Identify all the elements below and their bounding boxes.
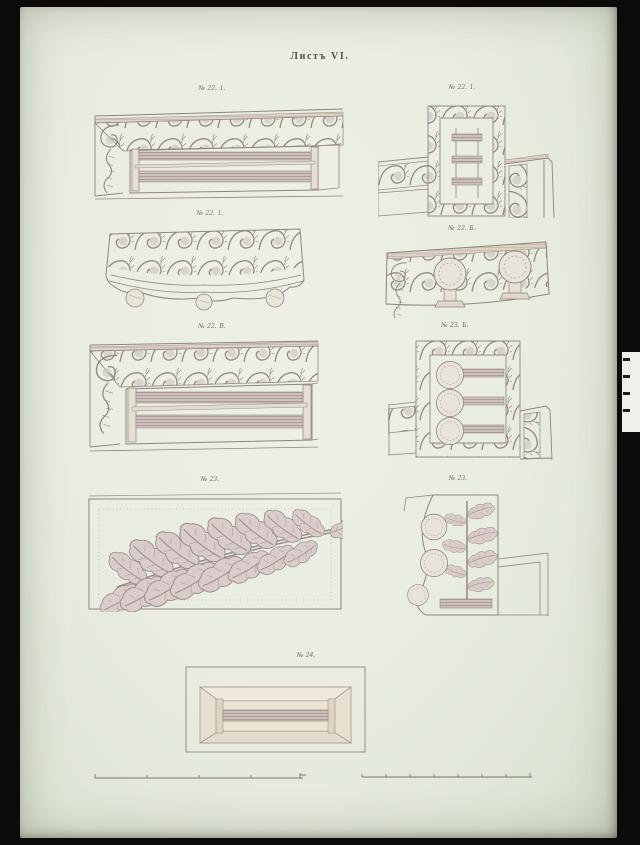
- figure-label: № 22. Б.: [448, 224, 476, 232]
- scale-bar-right: [360, 770, 536, 784]
- figure-soffit-discs: [378, 237, 552, 318]
- scale-bar-left: [93, 770, 308, 784]
- figure-scroll-frieze-1: [93, 103, 345, 200]
- figure-leaf-frieze: [87, 492, 343, 612]
- figure-label: № 23.: [200, 475, 219, 483]
- figure-label: № 24.: [296, 651, 315, 659]
- film-edge-marks: [623, 358, 630, 426]
- figure-label: № 22. 1.: [198, 84, 225, 92]
- figure-label: № 22. 1.: [196, 209, 223, 217]
- scanned-plate: Листъ VI. № 22. 1. № 22. 1. № 22. 1. № 2…: [0, 0, 640, 845]
- figure-label: № 23. Б.: [441, 321, 469, 329]
- figure-scroll-frieze-2: [88, 337, 320, 455]
- figure-label: № 23.: [448, 474, 467, 482]
- plate-title: Листъ VI.: [0, 51, 640, 62]
- figure-curved-bracket: [103, 225, 307, 315]
- figure-rosette-panel: [388, 335, 553, 460]
- figure-recessed-panel: [183, 664, 368, 755]
- figure-pilaster-panel: [378, 100, 558, 218]
- figure-label: № 22. В.: [198, 322, 226, 330]
- figure-label: № 22. 1.: [448, 83, 475, 91]
- figure-leaf-panel: [388, 487, 555, 618]
- film-edge-strip: [622, 352, 640, 432]
